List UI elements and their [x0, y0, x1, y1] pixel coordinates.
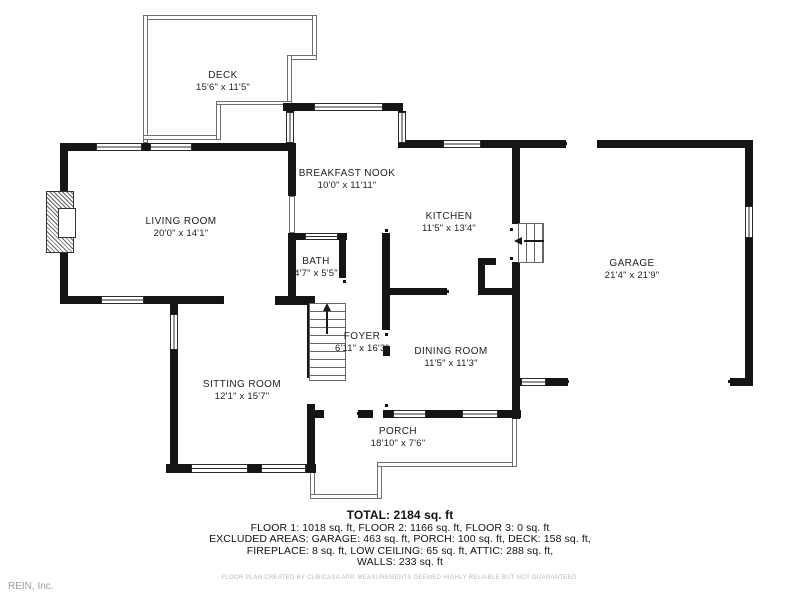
window	[462, 410, 498, 418]
room-dims: 15'6" x 11'5"	[196, 82, 250, 94]
window	[261, 464, 306, 473]
wall-segment	[383, 410, 393, 418]
deck-rail	[216, 101, 292, 105]
steps-direction-arrow	[524, 240, 544, 242]
wall-junction-dot	[276, 298, 279, 301]
window	[745, 206, 753, 238]
wall-segment	[166, 464, 191, 473]
room-dims: 10'0" x 11'11"	[299, 180, 396, 192]
stair-direction-arrow	[326, 310, 328, 334]
wall-segment	[481, 140, 566, 148]
room-dims: 11'5" x 13'4"	[422, 223, 476, 235]
fireplace-firebox	[58, 208, 76, 238]
room-dims: 18'10" x 7'6"	[371, 438, 426, 450]
window	[521, 378, 546, 386]
wall-junction-dot	[446, 290, 449, 293]
wall-segment	[546, 378, 568, 386]
deck-rail	[143, 135, 221, 140]
room-dims: 21'4" x 21'9"	[605, 270, 660, 282]
deck-rail	[312, 15, 317, 60]
wall-segment	[597, 140, 752, 148]
cased-opening	[289, 196, 295, 233]
window	[96, 143, 142, 151]
steps-arrow-head	[514, 237, 522, 245]
excluded-areas-line3: WALLS: 233 sq. ft	[0, 557, 800, 568]
wall-segment	[307, 404, 315, 472]
wall-segment	[288, 150, 296, 196]
total-area: TOTAL: 2184 sq. ft	[0, 509, 800, 522]
wall-segment	[730, 378, 753, 386]
wall-junction-dot	[343, 280, 346, 283]
wall-segment	[170, 303, 178, 314]
room-label-foyer: FOYER 6'11" x 16'3"	[335, 331, 389, 355]
watermark: REIN, Inc.	[8, 581, 54, 592]
wall-junction-dot	[728, 380, 731, 383]
room-label-bath: BATH 4'7" x 5'5"	[294, 256, 338, 280]
room-label-living-room: LIVING ROOM 20'0" x 14'1"	[145, 216, 216, 240]
room-label-breakfast-nook: BREAKFAST NOOK 10'0" x 11'11"	[299, 168, 396, 192]
porch-rail	[310, 494, 382, 499]
wall-segment	[283, 103, 314, 111]
wall-segment	[144, 296, 224, 304]
wall-segment	[339, 240, 346, 278]
porch-rail	[377, 465, 382, 499]
wall-segment	[512, 262, 520, 419]
room-label-dining-room: DINING ROOM 11'5" x 11'3"	[414, 346, 487, 370]
deck-rail	[216, 101, 221, 140]
window	[314, 103, 383, 111]
porch-rail	[512, 418, 517, 467]
room-dims: 6'11" x 16'3"	[335, 343, 389, 355]
wall-segment	[248, 464, 261, 473]
wall-junction-dot	[221, 298, 224, 301]
floor-plan: DECK 15'6" x 11'5" LIVING ROOM 20'0" x 1…	[0, 0, 800, 600]
wall-junction-dot	[385, 404, 388, 407]
wall-segment	[383, 103, 403, 111]
porch-rail	[377, 462, 517, 467]
room-label-porch: PORCH 18'10" x 7'6"	[371, 426, 426, 450]
wall-junction-dot	[385, 229, 388, 232]
window	[286, 112, 294, 143]
wall-junction-dot	[564, 142, 567, 145]
deck-rail	[287, 55, 292, 105]
wall-segment	[478, 258, 496, 265]
wall-segment	[498, 410, 521, 418]
wall-segment	[288, 233, 306, 240]
room-name: FOYER	[335, 331, 389, 343]
wall-segment	[426, 410, 462, 418]
room-dims: 20'0" x 14'1"	[145, 228, 216, 240]
wall-segment	[512, 140, 520, 224]
wall-segment	[337, 233, 347, 240]
window	[398, 112, 406, 143]
wall-junction-dot	[510, 228, 513, 231]
room-name: PORCH	[371, 426, 426, 438]
wall-junction-dot	[321, 412, 324, 415]
wall-segment	[170, 350, 178, 472]
window	[191, 464, 248, 473]
window	[393, 410, 426, 418]
room-label-sitting-room: SITTING ROOM 12'1" x 15'7"	[203, 379, 281, 403]
room-name: BREAKFAST NOOK	[299, 168, 396, 180]
wall-segment	[390, 288, 447, 295]
room-label-garage: GARAGE 21'4" x 21'9"	[605, 258, 660, 282]
wall-junction-dot	[566, 380, 569, 383]
deck-rail	[143, 15, 148, 143]
room-label-kitchen: KITCHEN 11'5" x 13'4"	[422, 211, 476, 235]
area-summary: TOTAL: 2184 sq. ft FLOOR 1: 1018 sq. ft,…	[0, 509, 800, 568]
deck-rail	[143, 15, 317, 20]
window	[101, 296, 144, 304]
room-name: LIVING ROOM	[145, 216, 216, 228]
door	[305, 233, 338, 240]
room-name: KITCHEN	[422, 211, 476, 223]
disclaimer-text: FLOOR PLAN CREATED BY CUBICASA APP. MEAS…	[0, 575, 800, 581]
wall-segment	[382, 233, 390, 330]
window	[150, 143, 192, 151]
wall-segment	[745, 140, 753, 206]
wall-segment	[478, 288, 519, 295]
wall-junction-dot	[510, 257, 513, 260]
room-label-deck: DECK 15'6" x 11'5"	[196, 70, 250, 94]
room-name: GARAGE	[605, 258, 660, 270]
window	[443, 140, 481, 148]
room-dims: 12'1" x 15'7"	[203, 391, 281, 403]
room-name: DECK	[196, 70, 250, 82]
wall-segment	[745, 238, 753, 386]
room-dims: 11'5" x 11'3"	[414, 358, 487, 370]
stair-arrow-head	[323, 303, 331, 311]
wall-segment	[60, 296, 101, 304]
room-name: SITTING ROOM	[203, 379, 281, 391]
wall-junction-dot	[357, 412, 360, 415]
wall-segment	[358, 410, 373, 418]
window	[170, 314, 178, 350]
room-dims: 4'7" x 5'5"	[294, 268, 338, 280]
excluded-areas-line1: EXCLUDED AREAS: GARAGE: 463 sq. ft, PORC…	[0, 534, 800, 545]
room-name: DINING ROOM	[414, 346, 487, 358]
wall-junction-dot	[598, 142, 601, 145]
room-name: BATH	[294, 256, 338, 268]
